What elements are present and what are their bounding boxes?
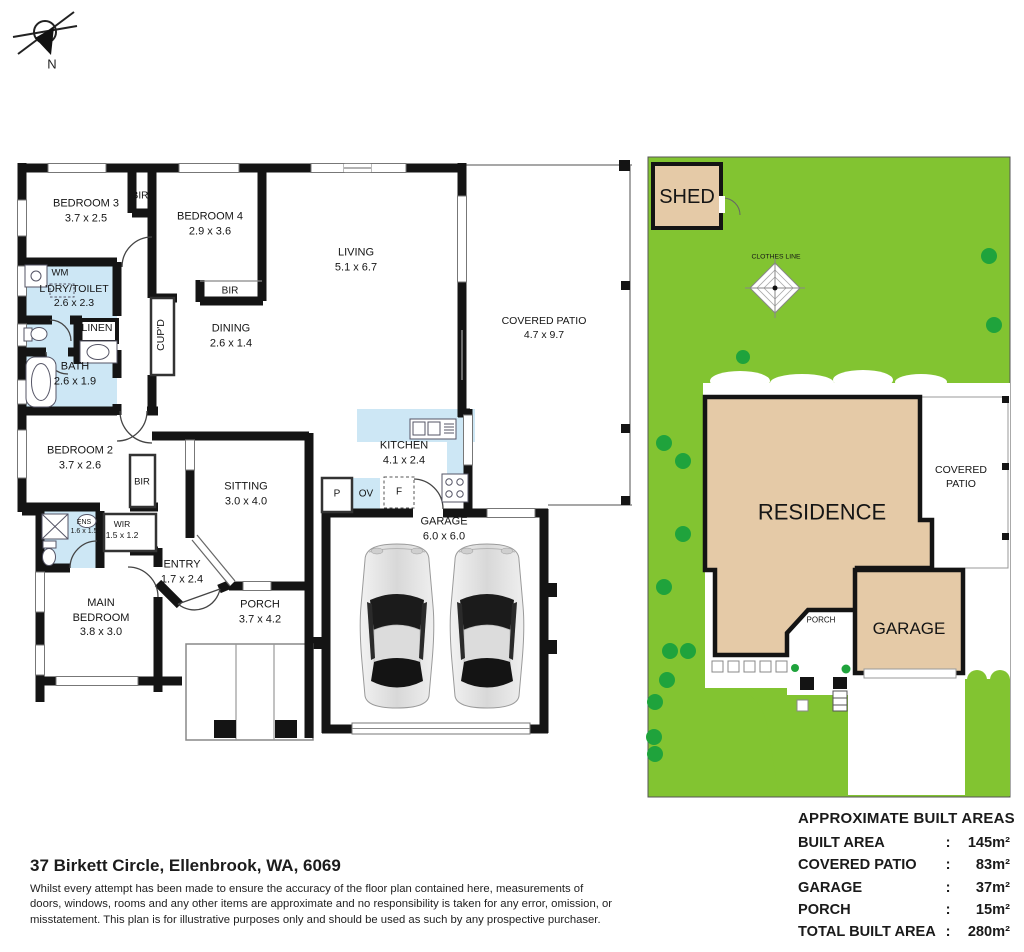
built-areas-title: APPROXIMATE BUILT AREAS bbox=[798, 810, 1010, 827]
area-row-label: PORCH bbox=[798, 899, 940, 921]
area-row-colon: : bbox=[940, 854, 956, 876]
area-row-value: 15m² bbox=[956, 899, 1010, 921]
area-row-2: GARAGE:37m² bbox=[798, 877, 1010, 899]
area-row-0: BUILT AREA:145m² bbox=[798, 832, 1010, 854]
area-row-colon: : bbox=[940, 899, 956, 921]
area-row-label: BUILT AREA bbox=[798, 832, 940, 854]
area-row-value: 145m² bbox=[956, 832, 1010, 854]
area-row-value: 83m² bbox=[956, 854, 1010, 876]
area-row-label: COVERED PATIO bbox=[798, 854, 940, 876]
garage-outline bbox=[855, 570, 963, 673]
area-row-1: COVERED PATIO:83m² bbox=[798, 854, 1010, 876]
disclaimer-text: Whilst every attempt has been made to en… bbox=[30, 882, 615, 928]
area-row-colon: : bbox=[940, 921, 956, 943]
shed-outline bbox=[653, 164, 721, 228]
area-row-label: GARAGE bbox=[798, 877, 940, 899]
area-row-3: PORCH:15m² bbox=[798, 899, 1010, 921]
built-areas-table: APPROXIMATE BUILT AREAS BUILT AREA:145m²… bbox=[798, 810, 1010, 943]
site-plan bbox=[646, 157, 1010, 797]
area-row-label: TOTAL BUILT AREA bbox=[798, 921, 940, 943]
area-row-colon: : bbox=[940, 877, 956, 899]
address-title: 37 Birkett Circle, Ellenbrook, WA, 6069 bbox=[30, 856, 341, 876]
area-row-colon: : bbox=[940, 832, 956, 854]
area-row-value: 37m² bbox=[956, 877, 1010, 899]
floorplan-page: { "compass": { "label": "N" }, "floorpla… bbox=[0, 0, 1024, 952]
area-row-4: TOTAL BUILT AREA:280m² bbox=[798, 921, 1010, 943]
compass-icon bbox=[13, 12, 77, 55]
compass-north-label: N bbox=[47, 57, 56, 72]
built-areas-rows: BUILT AREA:145m²COVERED PATIO:83m²GARAGE… bbox=[798, 832, 1010, 943]
floor-plan bbox=[18, 160, 633, 740]
area-row-value: 280m² bbox=[956, 921, 1010, 943]
